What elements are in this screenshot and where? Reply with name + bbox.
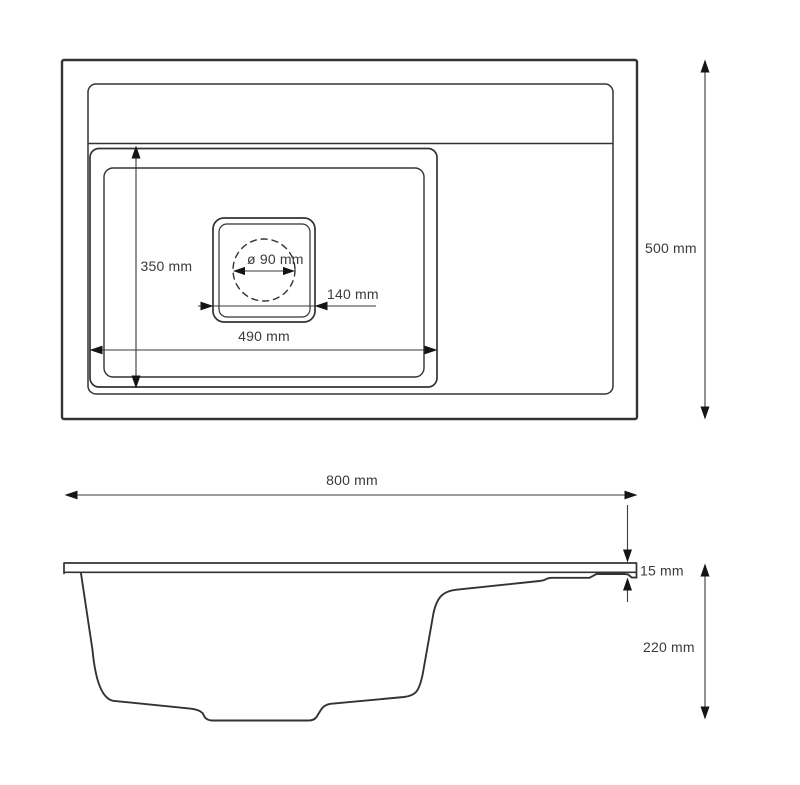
dim-140-label: 140 mm (327, 286, 379, 302)
arrow-right-icon (201, 302, 214, 311)
arrow-down-icon (701, 407, 710, 420)
arrow-left-icon (90, 346, 103, 355)
arrow-up-icon (701, 60, 710, 73)
arrow-right-icon (283, 267, 295, 275)
arrow-right-icon (625, 491, 638, 500)
dimension-350: 350 mm (132, 146, 193, 389)
dim-500-label: 500 mm (645, 240, 697, 256)
dimension-220: 220 mm (643, 564, 710, 720)
arrow-left-icon (315, 302, 328, 311)
arrow-left-icon (233, 267, 245, 275)
dim-490-label: 490 mm (238, 328, 290, 344)
dim-220-label: 220 mm (643, 639, 695, 655)
dim-350-label: 350 mm (141, 258, 193, 274)
dim-800-label: 800 mm (326, 472, 378, 488)
dimension-diameter: ø 90 mm (233, 251, 304, 275)
sink-dimension-drawing: 350 mm 490 mm 140 mm ø 90 mm (0, 0, 800, 785)
sink-outer-edge (62, 60, 637, 419)
body-profile (81, 574, 637, 721)
arrow-left-icon (65, 491, 78, 500)
arrow-right-icon (425, 346, 438, 355)
arrow-up-icon (701, 564, 710, 577)
dimension-15: 15 mm (623, 505, 684, 602)
dimension-490: 490 mm (90, 328, 438, 354)
arrow-down-icon (701, 707, 710, 720)
arrow-up-icon (623, 578, 632, 591)
sink-rim-inner-edge (88, 84, 613, 394)
side-view: 800 mm 15 mm 220 mm (64, 472, 710, 721)
dimension-500: 500 mm (645, 60, 710, 420)
arrow-up-icon (132, 146, 141, 159)
dim-15-label: 15 mm (640, 563, 684, 579)
arrow-down-icon (623, 550, 632, 563)
dimension-140: 140 mm (198, 286, 379, 310)
dimension-800: 800 mm (65, 472, 638, 499)
drawing-svg: 350 mm 490 mm 140 mm ø 90 mm (0, 0, 800, 785)
dim-diameter-label: ø 90 mm (247, 251, 304, 267)
rim-profile (64, 563, 637, 578)
top-view: 350 mm 490 mm 140 mm ø 90 mm (62, 60, 710, 420)
